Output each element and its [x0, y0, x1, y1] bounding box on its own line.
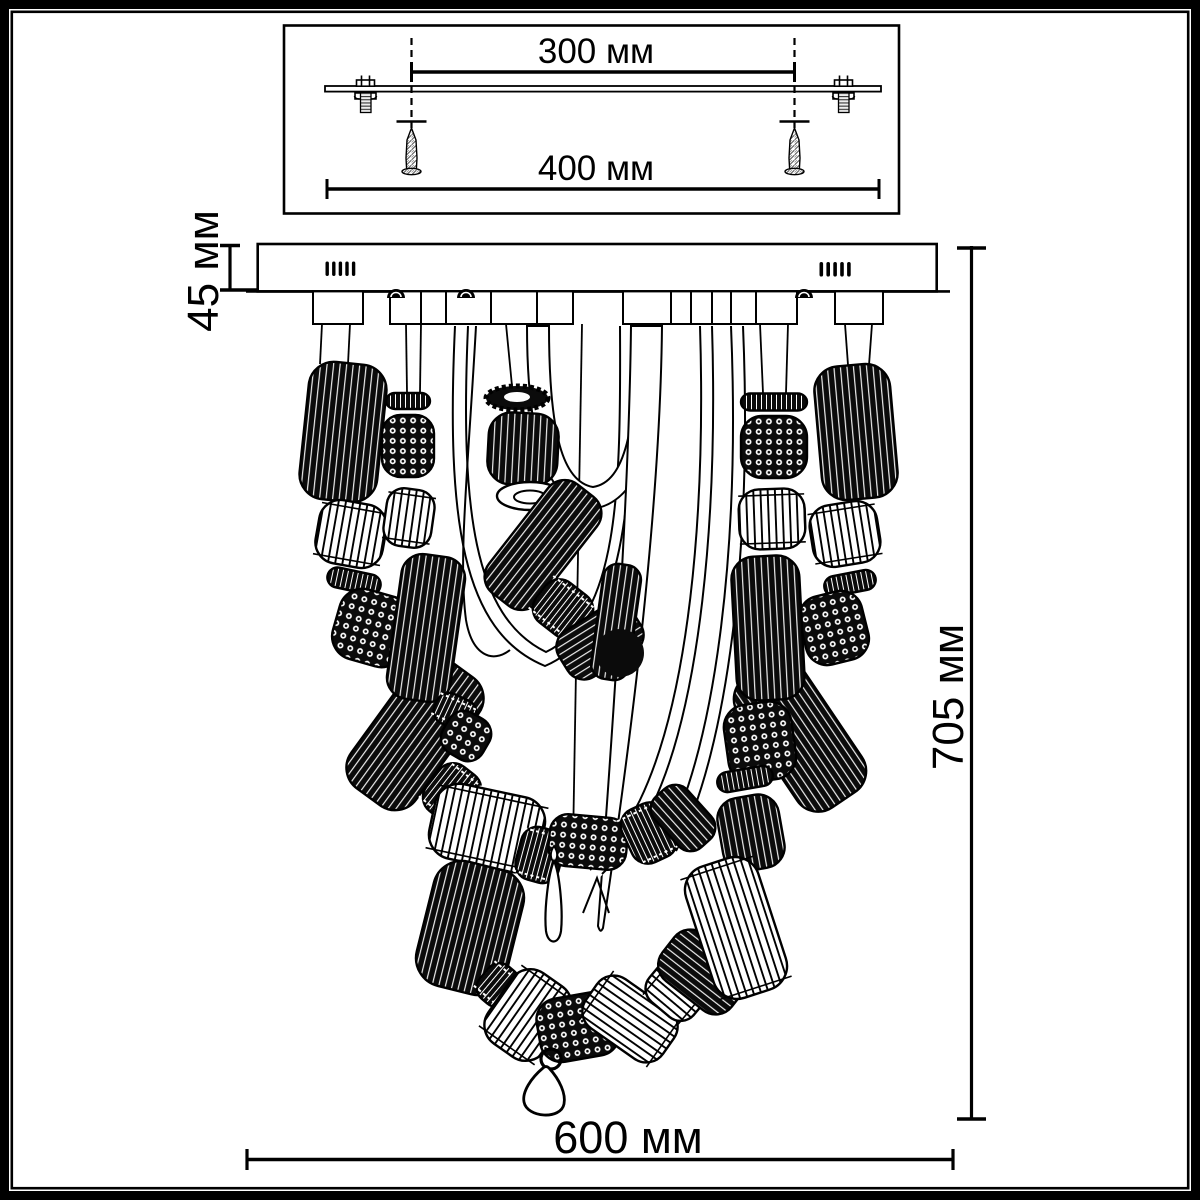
svg-text:600 мм: 600 мм: [553, 1112, 702, 1163]
svg-text:400 мм: 400 мм: [538, 149, 654, 188]
svg-text:300 мм: 300 мм: [538, 32, 654, 71]
svg-text:45 мм: 45 мм: [179, 210, 228, 332]
svg-text:705 мм: 705 мм: [924, 624, 973, 770]
